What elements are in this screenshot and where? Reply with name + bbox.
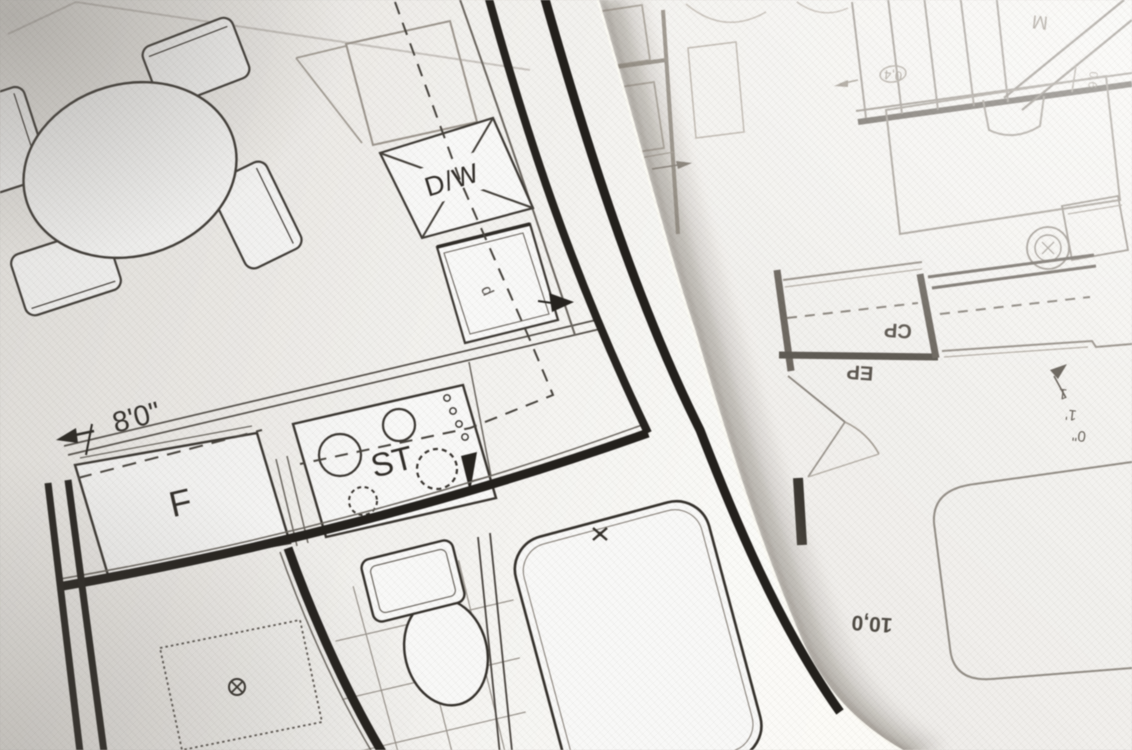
floorplan-canvas: d 0,9 M 0,4 0,6	[0, 0, 1132, 750]
blueprint-photo: d 0,9 M 0,4 0,6	[0, 0, 1132, 750]
under-dim-0-6: 0,6	[1085, 71, 1101, 89]
dim-11-0-char1: 1	[1058, 385, 1068, 403]
dim-11-0-char2: 1'	[1064, 405, 1077, 423]
dim-11-0-char3: 0"	[1071, 426, 1086, 444]
label-cp: CP	[883, 318, 912, 342]
photo-layer: d 0,9 M 0,4 0,6	[0, 0, 1132, 750]
under-label-m: M	[1031, 10, 1049, 33]
under-dim-0-4: 0,4	[883, 67, 903, 84]
label-ep: EP	[846, 360, 874, 384]
dim-10-0: 10,0	[851, 611, 893, 637]
